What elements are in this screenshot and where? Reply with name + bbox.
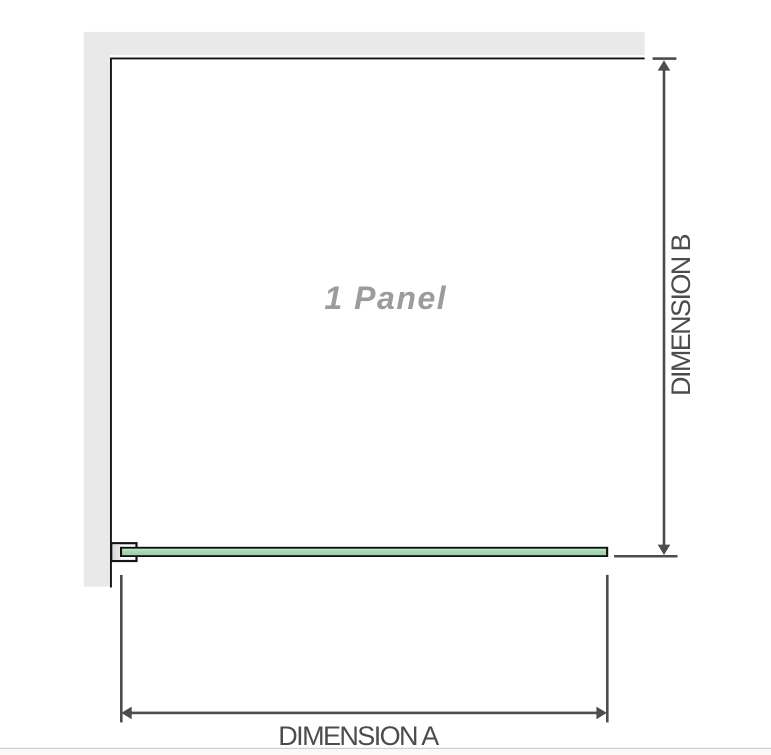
svg-text:DIMENSION A: DIMENSION A [278,721,439,751]
svg-text:1 Panel: 1 Panel [324,280,447,316]
svg-text:DIMENSION B: DIMENSION B [666,234,696,396]
